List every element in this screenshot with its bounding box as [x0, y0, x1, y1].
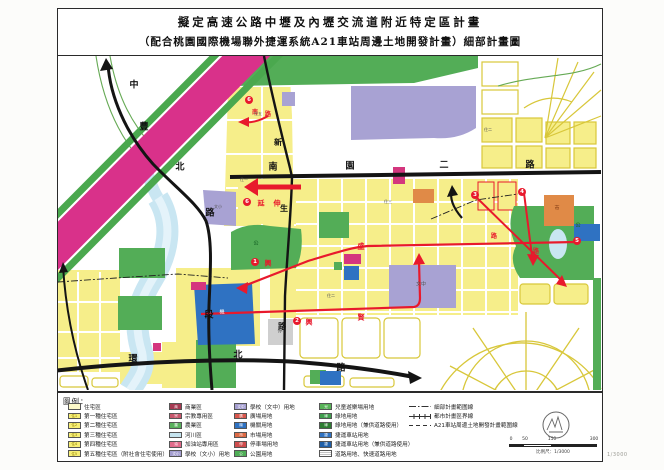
legend-label: 廣場用地 [250, 412, 272, 420]
legend-swatch: 住2 [68, 422, 81, 429]
legend-swatch [319, 450, 332, 457]
map-label: 路 [265, 112, 271, 118]
legend-item: 停停車場用地 [234, 440, 295, 449]
legend-swatch: 住5 [68, 450, 81, 457]
map-label: 賢 [358, 314, 365, 321]
legend-label: 第二種住宅區 [84, 421, 118, 429]
legend-item: 住5第五種住宅區（附社會住宅使用） [68, 449, 168, 458]
map-label: 北 [233, 352, 242, 361]
legend-line-dashdot [409, 404, 431, 409]
legend-item: 住2第二種住宅區 [68, 421, 168, 430]
legend-swatch-code: 文中 [237, 405, 244, 409]
map-label-layer: 中豐北路段新生路南園二路環北路興盛興賢延伸南路路路住五住二住二住三住一文中文小機… [58, 56, 602, 391]
legend-swatch-code: 廣 [239, 414, 243, 418]
map-label: 停 [277, 330, 282, 335]
legend-item: 住4第四種住宅區 [68, 440, 168, 449]
title-line-2: （配合桃園國際機場聯外捷運系統A21車站周邊土地開發計畫）細部計畫圖 [58, 34, 602, 49]
map-label: 盛 [358, 243, 365, 250]
legend-swatch: 文中 [234, 403, 247, 410]
scale-caption: 比例尺：1/3000 [509, 449, 597, 455]
legend-item: 兒兒童遊樂場用地 [319, 402, 413, 411]
legend-swatch-code: 捷 [324, 442, 328, 446]
legend-swatch [68, 403, 81, 410]
scale-bar-track [509, 444, 597, 447]
legend-label: 宗教專用區 [185, 412, 213, 420]
legend-swatch: 廣 [234, 413, 247, 420]
map-label: 中 [129, 82, 138, 91]
road-project-number: 6 [243, 198, 251, 206]
legend-item: 機機關用地 [234, 421, 295, 430]
legend-item: 文中學校（文中）用地 [234, 402, 295, 411]
map-label: 伸 [274, 200, 281, 207]
legend-item: 綠綠地用地 [319, 411, 413, 420]
legend-label: 第四種住宅區 [84, 440, 118, 448]
legend-label: 綠地用地（兼供道路使用） [335, 421, 402, 429]
legend-label: 捷運車站用地（兼供道路使用） [335, 440, 413, 448]
legend-item: 道路用地、快速道路用地 [319, 449, 413, 458]
legend-swatch: 油 [169, 441, 182, 448]
legend-column-districts: 商商業區宗宗教專用區農農業區河川區油加油站專用區文小學校（文小）用地 [169, 402, 230, 458]
map-label: 豐 [139, 124, 148, 133]
legend-swatch-code: 公 [239, 452, 243, 456]
legend-swatch-code: 宗 [174, 414, 178, 418]
legend-swatch-code: 停 [239, 442, 243, 446]
map-label: 公 [575, 224, 580, 229]
map-label: 生 [280, 204, 288, 212]
legend-label: 第三種住宅區 [84, 431, 118, 439]
map-label: 住二 [484, 128, 492, 132]
title-block: 擬定高速公路中壢及內壢交流道附近特定區計畫 （配合桃園國際機場聯外捷運系統A21… [57, 8, 603, 56]
legend-swatch-code: 住5 [72, 452, 78, 456]
legend-swatch: 綠 [319, 413, 332, 420]
scale-tick: 0 [510, 437, 513, 442]
map-label: 住五 [254, 112, 262, 116]
legend-label: 加油站專用區 [185, 440, 219, 448]
legend-column-facilities: 文中學校（文中）用地廣廣場用地機機關用地市市場用地停停車場用地公公園用地 [234, 402, 295, 458]
legend-swatch [169, 432, 182, 439]
legend-swatch-code: 機 [239, 424, 243, 428]
scale-tick: 300 [590, 437, 599, 442]
road-project-number: 3 [471, 191, 479, 199]
legend-swatch: 住3 [68, 432, 81, 439]
map-canvas: 中豐北路段新生路南園二路環北路興盛興賢延伸南路路路住五住二住二住三住一文中文小機… [57, 56, 603, 392]
legend-label: 農業區 [185, 421, 202, 429]
legend-swatch: 兒 [319, 403, 332, 410]
legend: 圖例： 住宅區住1第一種住宅區住2第二種住宅區住3第三種住宅區住4第四種住宅區住… [57, 392, 603, 462]
map-label: 路 [336, 365, 345, 374]
legend-swatch: 農 [169, 422, 182, 429]
legend-label: 市場用地 [250, 431, 272, 439]
legend-swatch: 宗 [169, 413, 182, 420]
legend-swatch-code: 住4 [72, 442, 78, 446]
map-label: 園 [345, 163, 354, 172]
legend-swatch-code: 商 [174, 405, 178, 409]
legend-line-cross [409, 414, 431, 419]
legend-label: 捷運車站用地 [335, 431, 369, 439]
legend-item: 宗宗教專用區 [169, 411, 230, 420]
legend-item: 都市計畫區界線 [409, 411, 518, 420]
legend-item: 捷捷運車站用地（兼供道路使用） [319, 440, 413, 449]
plan-map-sheet: 擬定高速公路中壢及內壢交流道附近特定區計畫 （配合桃園國際機場聯外捷運系統A21… [0, 0, 664, 470]
corner-scale-note: 1/3000 [607, 452, 628, 458]
legend-item: 捷捷運車站用地 [319, 430, 413, 439]
legend-swatch-code: 住2 [72, 424, 78, 428]
road-project-number: 4 [518, 188, 526, 196]
legend-swatch-code: 市 [239, 433, 243, 437]
map-label: 路 [205, 210, 214, 219]
legend-column-boundaries: 細部計畫範圍線都市計畫區界線A21車站周邊土地開發計畫範圍線 [409, 402, 518, 430]
legend-swatch-code: 兒 [324, 405, 328, 409]
legend-label: 道路用地、快速道路用地 [335, 450, 397, 458]
map-label: 公 [253, 242, 258, 247]
map-label: 北 [175, 164, 184, 173]
map-label: 興 [265, 260, 272, 267]
legend-item: 文小學校（文小）用地 [169, 449, 230, 458]
legend-item: 住3第三種住宅區 [68, 430, 168, 439]
legend-swatch: 捷 [319, 441, 332, 448]
legend-swatch-code: 綠 [324, 414, 328, 418]
legend-swatch: 商 [169, 403, 182, 410]
road-project-number: 5 [573, 237, 581, 245]
legend-swatch: 住4 [68, 441, 81, 448]
legend-label: A21車站周邊土地開發計畫範圍線 [434, 421, 518, 429]
map-label: 延 [258, 200, 265, 207]
legend-item: 住1第一種住宅區 [68, 411, 168, 420]
agency-seal [541, 410, 571, 444]
legend-label: 河川區 [185, 431, 202, 439]
map-label: 住二 [327, 294, 335, 298]
map-label: 環 [128, 356, 137, 365]
map-label: 南 [268, 164, 277, 173]
legend-swatch-code: 捷 [324, 433, 328, 437]
legend-item: 河川區 [169, 430, 230, 439]
map-label: 文中 [416, 283, 426, 288]
legend-item: 細部計畫範圍線 [409, 402, 518, 411]
legend-swatch-code: 住3 [72, 433, 78, 437]
legend-line-dash [409, 423, 431, 428]
legend-label: 綠地用地 [335, 412, 357, 420]
legend-label: 都市計畫區界線 [434, 412, 473, 420]
legend-item: 農農業區 [169, 421, 230, 430]
legend-label: 兒童遊樂場用地 [335, 403, 374, 411]
road-project-number: 6 [245, 96, 253, 104]
scale-tick: 50 [522, 437, 528, 442]
legend-label: 細部計畫範圍線 [434, 403, 473, 411]
legend-item: A21車站周邊土地開發計畫範圍線 [409, 421, 518, 430]
legend-item: 油加油站專用區 [169, 440, 230, 449]
legend-item: 市市場用地 [234, 430, 295, 439]
map-label: 興 [306, 319, 313, 326]
legend-swatch: 文小 [169, 450, 182, 457]
legend-column-green-transit: 兒兒童遊樂場用地綠綠地用地綠綠地用地（兼供道路使用）捷捷運車站用地捷捷運車站用地… [319, 402, 413, 458]
map-label: 路 [491, 234, 497, 240]
legend-label: 學校（文小）用地 [185, 450, 230, 458]
legend-swatch-code: 文小 [172, 452, 179, 456]
map-label: 機 [219, 311, 224, 316]
legend-label: 住宅區 [84, 403, 101, 411]
map-label: 路 [533, 249, 539, 255]
legend-label: 機關用地 [250, 421, 272, 429]
legend-swatch: 市 [234, 432, 247, 439]
road-project-number: 2 [293, 317, 301, 325]
legend-label: 公園用地 [250, 450, 272, 458]
legend-column-residential: 住宅區住1第一種住宅區住2第二種住宅區住3第三種住宅區住4第四種住宅區住5第五種… [68, 402, 168, 458]
legend-swatch: 停 [234, 441, 247, 448]
map-label: 住一 [240, 178, 248, 182]
legend-swatch-code: 住1 [72, 414, 78, 418]
legend-swatch-code: 綠 [324, 424, 328, 428]
map-label: 段 [204, 312, 213, 321]
map-label: 新 [274, 138, 282, 146]
title-line-1: 擬定高速公路中壢及內壢交流道附近特定區計畫 [58, 14, 602, 30]
legend-label: 商業區 [185, 403, 202, 411]
legend-label: 第五種住宅區（附社會住宅使用） [84, 450, 168, 458]
road-project-number: 1 [251, 258, 259, 266]
map-label: 二 [439, 162, 448, 171]
map-label: 文小 [214, 205, 222, 209]
legend-item: 綠綠地用地（兼供道路使用） [319, 421, 413, 430]
map-label: 路 [525, 162, 534, 171]
legend-item: 商商業區 [169, 402, 230, 411]
legend-swatch: 捷 [319, 432, 332, 439]
legend-swatch: 綠 [319, 422, 332, 429]
legend-label: 學校（文中）用地 [250, 403, 295, 411]
legend-item: 公公園用地 [234, 449, 295, 458]
legend-swatch: 住1 [68, 413, 81, 420]
legend-swatch: 機 [234, 422, 247, 429]
legend-label: 第一種住宅區 [84, 412, 118, 420]
legend-item: 住宅區 [68, 402, 168, 411]
legend-item: 廣廣場用地 [234, 411, 295, 420]
map-label: 住三 [384, 200, 392, 204]
legend-swatch-code: 油 [174, 442, 178, 446]
legend-label: 停車場用地 [250, 440, 278, 448]
legend-swatch: 公 [234, 450, 247, 457]
map-label: 市 [554, 207, 559, 212]
legend-swatch-code: 農 [174, 424, 178, 428]
